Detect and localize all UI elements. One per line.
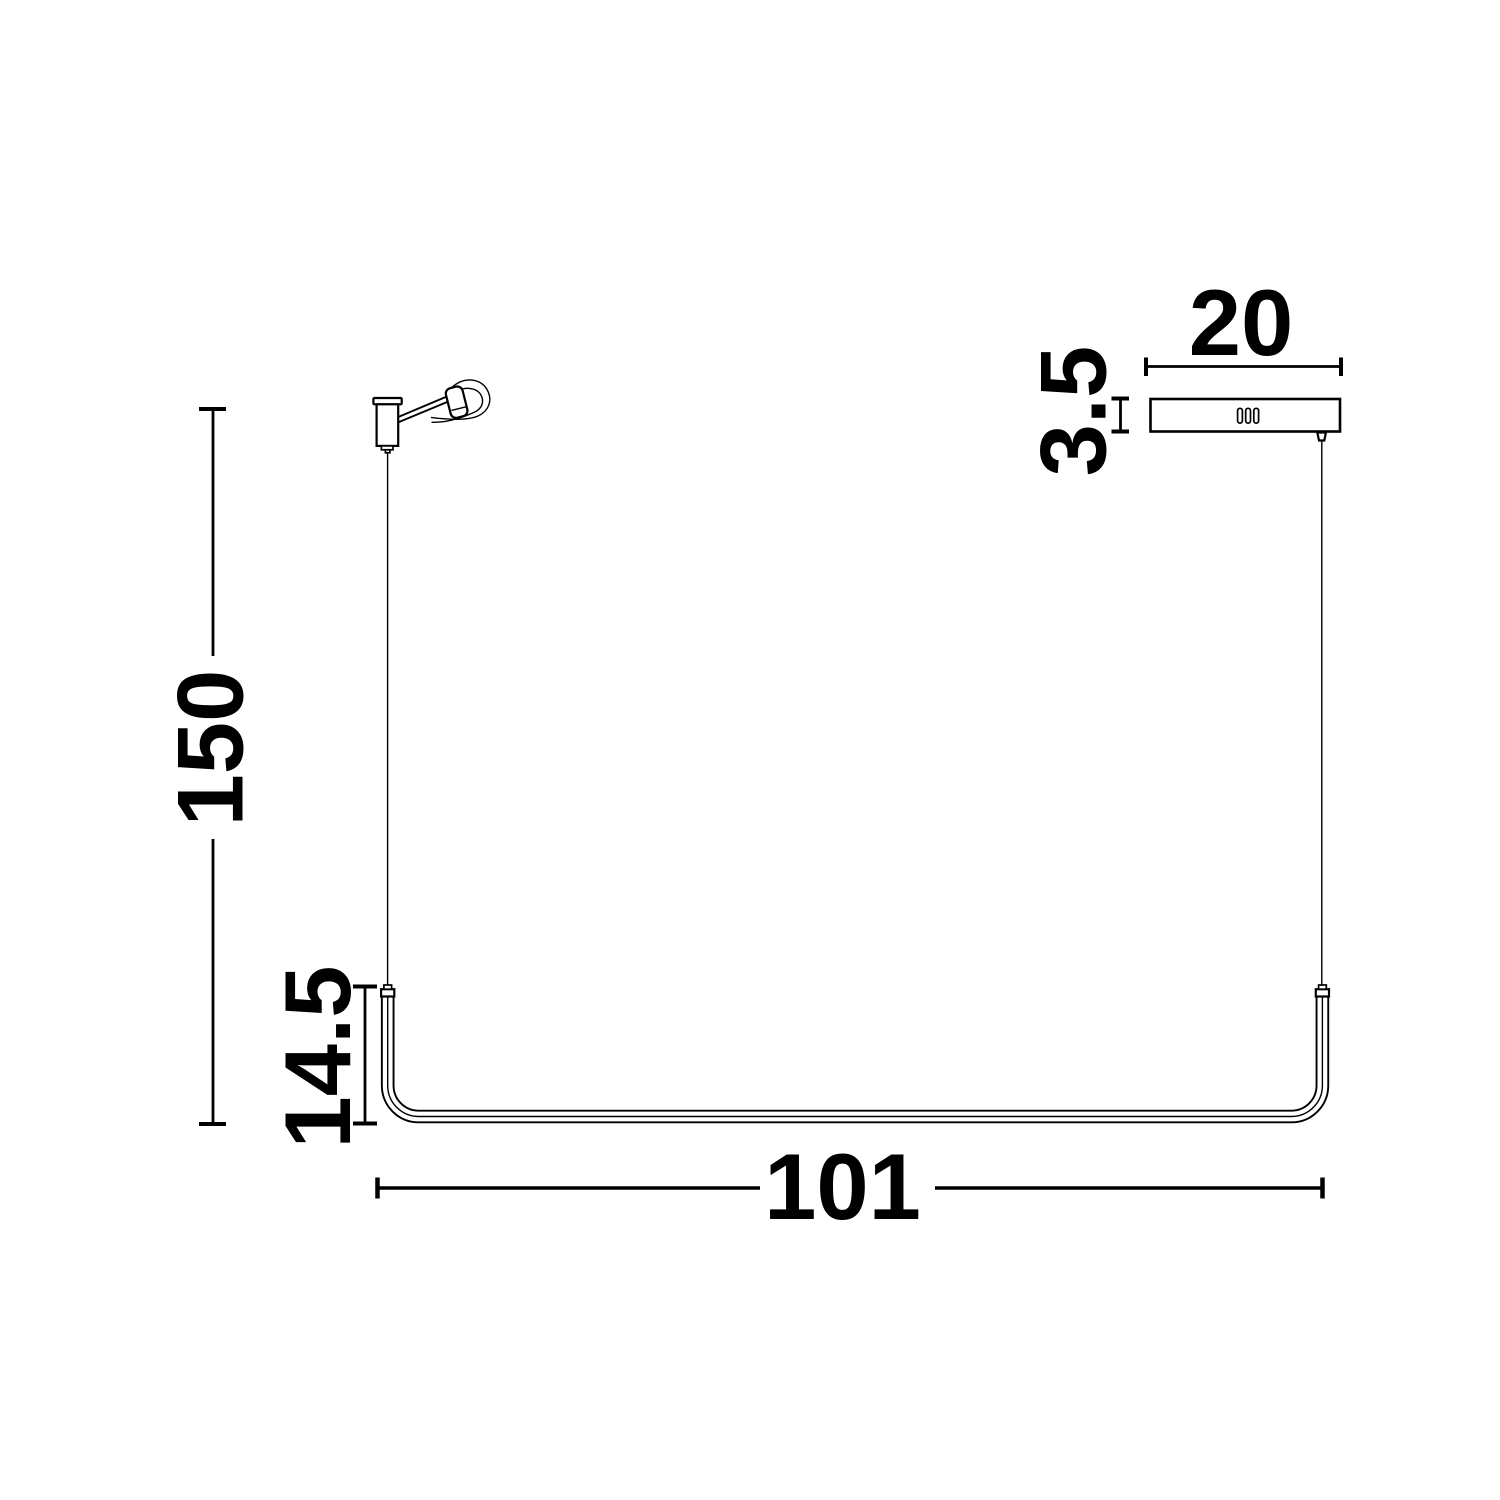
dimension-bar-length: 101: [378, 1134, 1323, 1239]
dimension-canopy-height: 3.5: [1021, 346, 1130, 477]
dim-label-suspension-height: 150: [158, 670, 263, 827]
right-tube-end-cap: [1316, 989, 1329, 996]
dimension-end-height: 14.5: [265, 966, 377, 1149]
lamp-bar: [381, 985, 1329, 1117]
dim-label-bar-length: 101: [764, 1134, 921, 1239]
canopy-vent-slot: [1254, 408, 1259, 423]
canopy-cable-exit-nub: [1317, 433, 1326, 441]
dim-label-canopy-width: 20: [1189, 270, 1294, 375]
wire-clamp-body: [445, 385, 469, 419]
lamp-tube-centerline: [388, 996, 1323, 1117]
canopy-vent-slot: [1246, 408, 1251, 423]
left-tube-end-cap: [381, 989, 394, 996]
pendant-lamp-dimension-drawing: 150 14.5 101 20 3.5: [0, 0, 1500, 1500]
adjuster-rod-upper-edge: [397, 395, 452, 418]
cable-gripper: [373, 380, 489, 453]
lamp-tube-core: [388, 996, 1323, 1117]
drawing-canvas: 150 14.5 101 20 3.5: [0, 0, 1500, 1500]
dimension-canopy-width: 20: [1146, 270, 1341, 376]
dimension-suspension-height: 150: [158, 409, 263, 1124]
right-tube-end-ferrule: [1319, 985, 1327, 989]
wire-clamp: [445, 385, 469, 419]
dim-label-end-height: 14.5: [265, 966, 370, 1149]
lamp-tube-contour: [388, 996, 1323, 1117]
canopy-vent-slot: [1238, 408, 1243, 423]
ceiling-canopy: [1151, 399, 1341, 441]
gripper-cable-stem: [385, 450, 390, 453]
dim-label-canopy-height: 3.5: [1021, 346, 1126, 477]
gripper-cylinder-body: [377, 404, 399, 446]
left-tube-end-ferrule: [384, 985, 392, 989]
suspension-cables: [388, 441, 1322, 986]
